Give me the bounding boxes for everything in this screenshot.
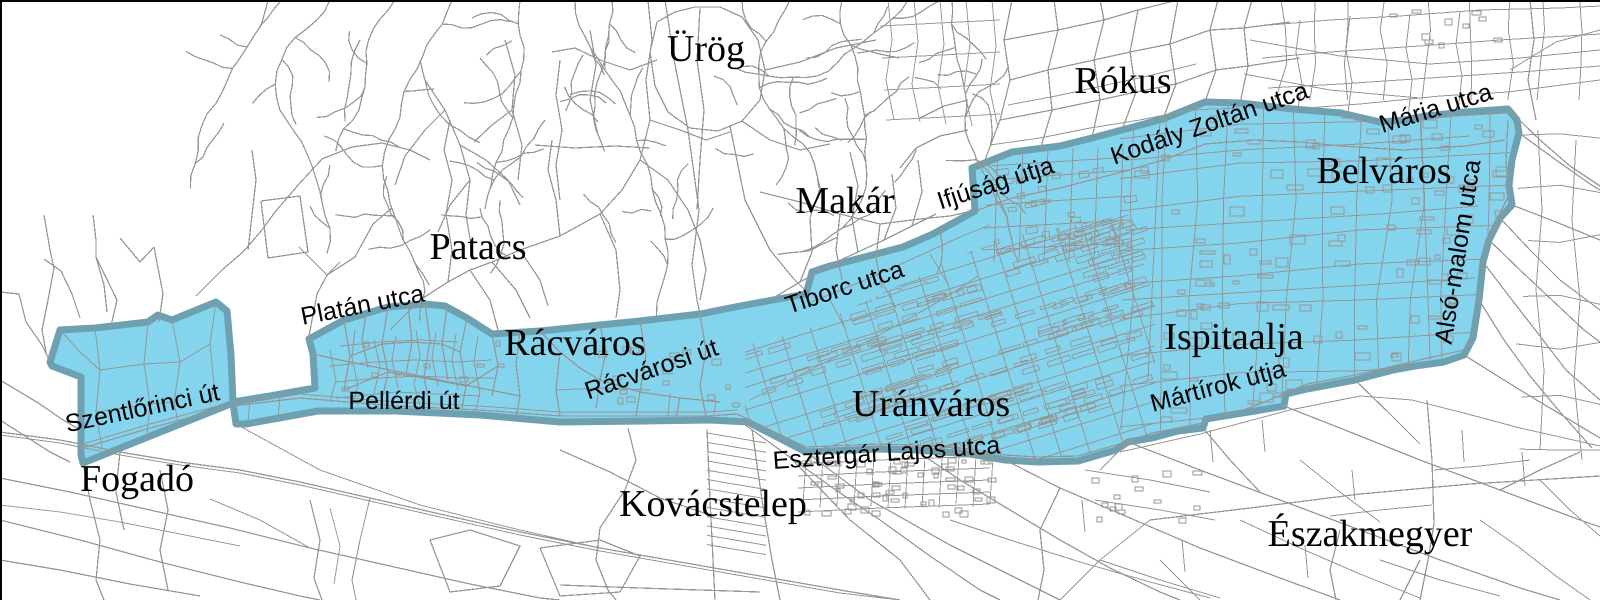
svg-text:Pellérdi út: Pellérdi út	[348, 387, 459, 415]
svg-text:Kovácstelep: Kovácstelep	[619, 483, 807, 525]
svg-text:Ispitaalja: Ispitaalja	[1164, 316, 1303, 358]
svg-text:Ürög: Ürög	[667, 28, 745, 70]
svg-text:Makár: Makár	[795, 180, 895, 222]
svg-text:Patacs: Patacs	[429, 226, 526, 268]
svg-text:Rókus: Rókus	[1074, 60, 1171, 102]
svg-text:Fogadó: Fogadó	[80, 458, 194, 500]
svg-text:Uránváros: Uránváros	[852, 383, 1010, 425]
svg-text:Rácváros: Rácváros	[504, 322, 645, 364]
svg-text:Északmegyer: Északmegyer	[1268, 513, 1473, 555]
svg-text:Belváros: Belváros	[1316, 150, 1451, 192]
